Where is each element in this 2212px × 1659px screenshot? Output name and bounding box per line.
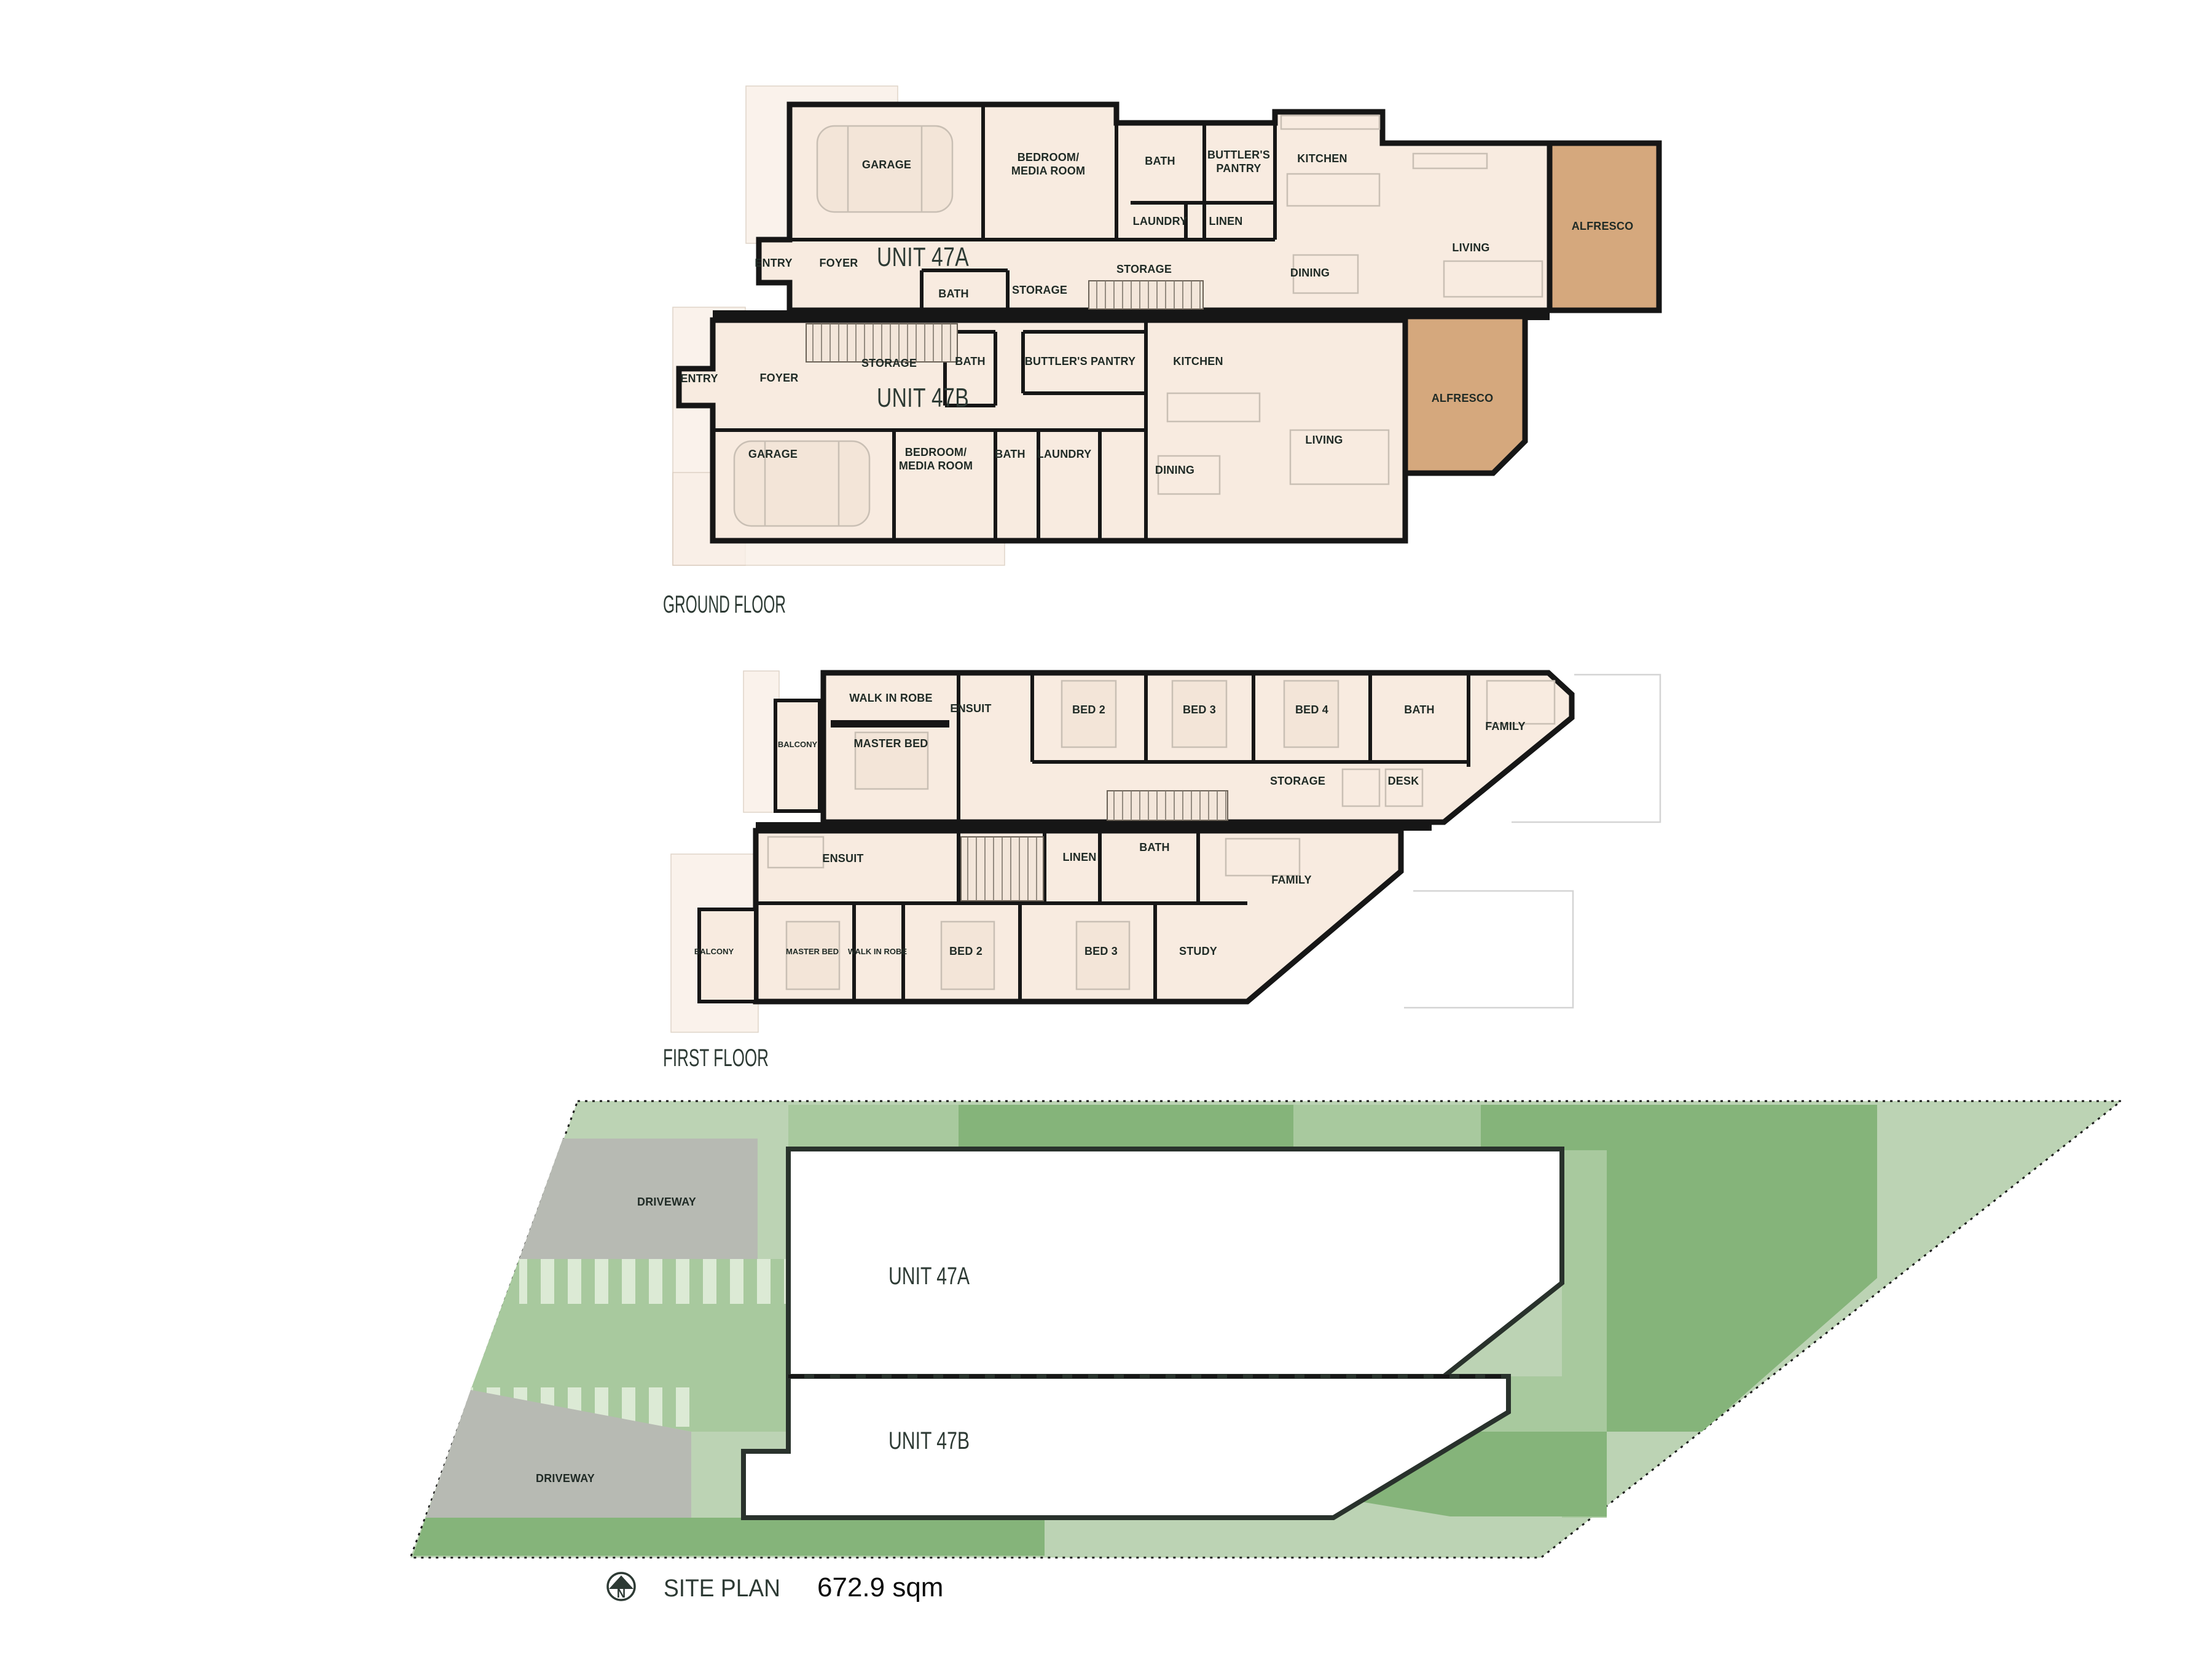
north-arrow-letter: N xyxy=(617,1587,626,1601)
north-arrow-icon: N xyxy=(608,1573,635,1601)
room-label-ensuit-a: ENSUIT xyxy=(950,702,991,715)
room-label-alfresco-b: ALFRESCO xyxy=(1432,392,1494,404)
first-floor-plan: BALCONY WALK IN ROBE MASTER BED ENSUIT B… xyxy=(663,671,1660,1072)
room-label-garage-a: GARAGE xyxy=(862,159,911,171)
room-label-kitchen-a: KITCHEN xyxy=(1297,152,1347,165)
site-area-label: 672.9 sqm xyxy=(817,1572,943,1602)
room-label-butlers-a2: PANTRY xyxy=(1216,162,1261,175)
room-label-bedroom-media-b2: MEDIA ROOM xyxy=(899,460,973,472)
site-unit-47b-label: UNIT 47B xyxy=(888,1427,970,1454)
room-label-laundry-b: LAUNDRY xyxy=(1037,448,1092,460)
room-label-wir-a: WALK IN ROBE xyxy=(849,692,932,704)
unit-47b-ground-stairs xyxy=(806,324,957,362)
room-label-storage-b: STORAGE xyxy=(861,357,917,369)
driveway-lower-label: DRIVEWAY xyxy=(536,1472,595,1484)
room-label-master-b: MASTER BED xyxy=(786,947,839,956)
driveway-upper-label: DRIVEWAY xyxy=(637,1196,696,1208)
room-label-balcony-b: BALCONY xyxy=(694,947,734,956)
room-label-bath-b: BATH xyxy=(995,448,1025,460)
ground-floor-title: GROUND FLOOR xyxy=(663,591,786,618)
floorplan-sheet: GARAGE BEDROOM/ MEDIA ROOM BATH BUTTLER'… xyxy=(0,0,2212,1659)
first-floor-title: FIRST FLOOR xyxy=(663,1045,769,1072)
room-label-ensuit-b: ENSUIT xyxy=(822,852,863,865)
unit-47a-ground-title: UNIT 47A xyxy=(877,242,969,272)
room-label-family-b: FAMILY xyxy=(1271,874,1312,886)
room-label-family-a: FAMILY xyxy=(1485,720,1526,732)
room-label-entry-b: ENTRY xyxy=(680,372,718,385)
room-label-laundry-a: LAUNDRY xyxy=(1133,215,1188,227)
site-unit-47a-label: UNIT 47A xyxy=(888,1263,970,1290)
room-label-bath-b-top: BATH xyxy=(955,355,985,367)
room-label-balcony-a: BALCONY xyxy=(778,740,818,749)
ground-floor-plan: GARAGE BEDROOM/ MEDIA ROOM BATH BUTTLER'… xyxy=(663,86,1659,618)
room-label-alfresco-a: ALFRESCO xyxy=(1572,220,1634,232)
room-label-storage-a-top: STORAGE xyxy=(1116,263,1172,275)
unit-47a-ground-stairs xyxy=(1089,281,1203,309)
room-label-bed3-a: BED 3 xyxy=(1183,704,1216,716)
room-label-linen-a: LINEN xyxy=(1209,215,1243,227)
room-label-bedroom-media-b1: BEDROOM/ xyxy=(905,446,967,458)
room-label-bath-a-first: BATH xyxy=(1404,704,1434,716)
room-label-bed2-a: BED 2 xyxy=(1072,704,1105,716)
room-label-desk-a: DESK xyxy=(1388,775,1419,787)
unit-47b-ground-title: UNIT 47B xyxy=(877,383,969,413)
floorplan-canvas: GARAGE BEDROOM/ MEDIA ROOM BATH BUTTLER'… xyxy=(0,0,2212,1659)
room-label-bath-a-top: BATH xyxy=(1145,155,1175,167)
room-label-living-b: LIVING xyxy=(1305,434,1343,446)
room-label-dining-a: DINING xyxy=(1290,267,1330,279)
room-label-bed3-b: BED 3 xyxy=(1084,945,1118,957)
room-label-butlers-b: BUTTLER'S PANTRY xyxy=(1025,355,1135,367)
room-label-entry-a: ENTRY xyxy=(755,257,792,269)
room-label-bed2-b: BED 2 xyxy=(949,945,982,957)
unit-47b-first-stairs xyxy=(961,837,1043,901)
room-label-bedroom-media-a2: MEDIA ROOM xyxy=(1011,165,1085,177)
room-label-bedroom-media-a1: BEDROOM/ xyxy=(1018,151,1080,163)
room-label-linen-b: LINEN xyxy=(1063,851,1097,863)
unit-47a-balcony xyxy=(775,700,820,811)
room-label-butlers-a1: BUTTLER'S xyxy=(1207,149,1270,161)
unit-47a-first-stairs xyxy=(1107,791,1228,820)
room-label-dining-b: DINING xyxy=(1155,464,1194,476)
site-plan-title: SITE PLAN xyxy=(664,1575,780,1602)
room-label-wir-b: WALK IN ROBE xyxy=(848,947,907,956)
room-label-bath-a-mid: BATH xyxy=(938,288,968,300)
room-label-foyer-a: FOYER xyxy=(819,257,858,269)
room-label-study-b: STUDY xyxy=(1179,945,1217,957)
room-label-kitchen-b: KITCHEN xyxy=(1173,355,1223,367)
room-label-master-a: MASTER BED xyxy=(853,737,928,750)
room-label-storage-a-mid: STORAGE xyxy=(1012,284,1067,296)
room-label-living-a: LIVING xyxy=(1452,241,1489,254)
site-plan: DRIVEWAY DRIVEWAY UNIT 47A UNIT 47B N SI… xyxy=(410,1101,2121,1602)
room-label-garage-b: GARAGE xyxy=(748,448,798,460)
room-label-bath-b-first: BATH xyxy=(1139,841,1169,853)
room-label-foyer-b: FOYER xyxy=(759,372,798,384)
room-label-bed4-a: BED 4 xyxy=(1295,704,1328,716)
room-label-storage-a-first: STORAGE xyxy=(1270,775,1325,787)
site-legend: N SITE PLAN 672.9 sqm xyxy=(608,1572,943,1602)
